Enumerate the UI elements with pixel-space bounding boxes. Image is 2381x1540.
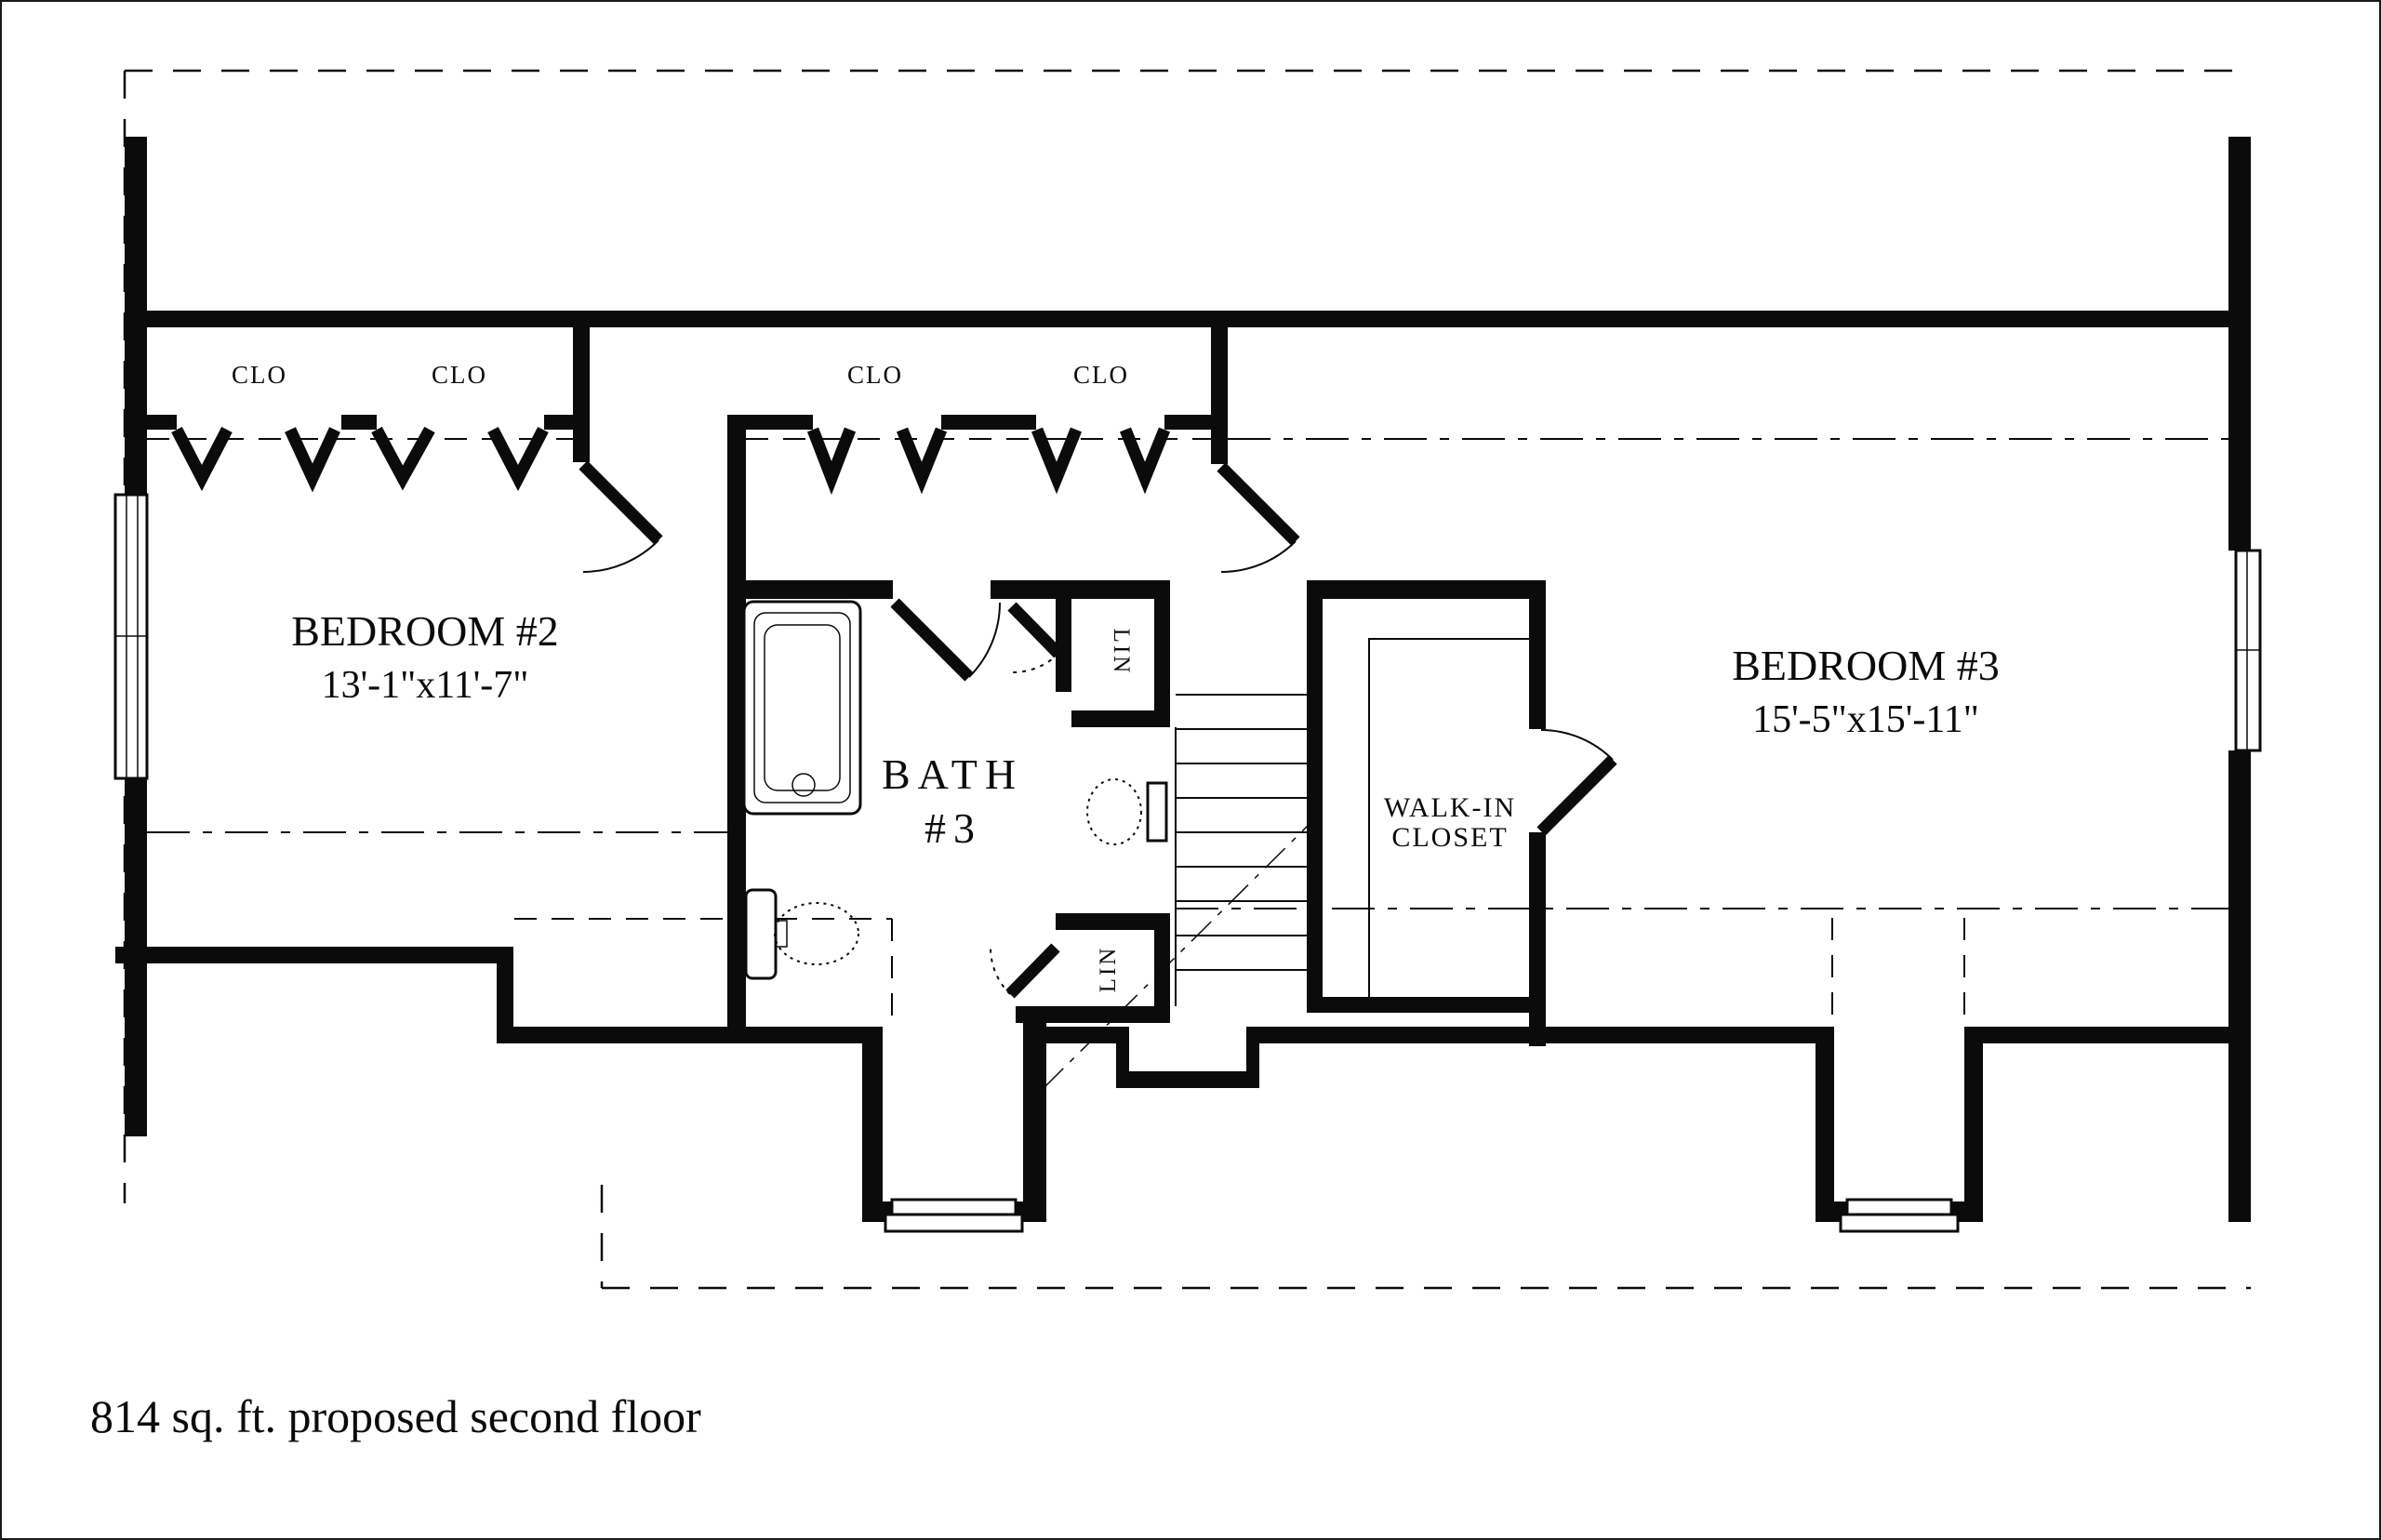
wall-bedroom2-south xyxy=(115,947,513,963)
wall-top xyxy=(125,311,2251,327)
closet-jamb xyxy=(746,415,813,430)
closet-strip xyxy=(147,415,2228,478)
notch-right-wall xyxy=(1246,1027,1259,1088)
bifold-door-icon xyxy=(177,430,227,478)
toilet xyxy=(746,890,858,978)
wall-lin-top-north xyxy=(991,580,1170,599)
wall-south-b xyxy=(1046,1027,1116,1043)
lin-bottom-door-swing-arc xyxy=(991,948,1010,994)
wall-lin-top-east xyxy=(1154,599,1170,710)
wall-stair-east xyxy=(1307,580,1323,1013)
walkin-door-swing-arc xyxy=(1541,730,1613,760)
closet-jamb xyxy=(147,415,177,430)
label-walkin-line1: WALK-IN xyxy=(1384,792,1516,823)
ceiling-break-lines xyxy=(147,832,2228,1027)
window-right xyxy=(2236,551,2260,750)
closet-jamb xyxy=(341,415,377,430)
wall-south-d xyxy=(1983,1027,2251,1043)
bifold-door-icon xyxy=(1037,430,1076,478)
wall-bedroom3-hall xyxy=(1211,327,1228,464)
wall-right-lower xyxy=(2228,750,2251,1222)
wall-walkin-north xyxy=(1307,580,1546,599)
toilet-tank xyxy=(746,890,776,978)
wall-walkin-east-upper xyxy=(1529,580,1546,729)
lin-top-door-swing-arc xyxy=(1012,654,1058,672)
walkin-door-leaf xyxy=(1541,760,1613,831)
label-lin-top: LIN xyxy=(1109,629,1134,676)
bedroom2-door-swing-arc xyxy=(583,540,658,572)
sink-basin xyxy=(1087,779,1141,844)
bifold-door-icon xyxy=(493,430,543,478)
wall-lin-top-south xyxy=(1071,710,1170,727)
bifold-door-icon xyxy=(290,430,335,478)
wall-south-a xyxy=(497,1027,862,1043)
wall-bath-north xyxy=(739,580,893,599)
dormer1-window-sill xyxy=(885,1215,1022,1231)
interior-walls xyxy=(573,327,1546,1046)
dormer1-window xyxy=(885,1200,1022,1231)
bedroom2-door xyxy=(583,465,658,572)
dormer1-left-cheek xyxy=(862,1027,883,1222)
closet-jamb xyxy=(1164,415,1216,430)
label-bedroom2-name: BEDROOM #2 xyxy=(291,607,559,655)
bedroom3-door-swing-arc xyxy=(1221,541,1296,572)
bifold-door-icon xyxy=(813,430,850,478)
lin-top-door xyxy=(1012,606,1058,672)
dormer2-window-sill xyxy=(1841,1215,1958,1231)
dormer1-window-sash xyxy=(892,1200,1016,1215)
label-clo-4: CLO xyxy=(1073,361,1129,389)
bath-door-swing-arc xyxy=(969,603,1000,677)
labels: CLO CLO CLO CLO BEDROOM #2 13'-1"x11'-7"… xyxy=(90,361,2000,1442)
wall-walkin-east-lower xyxy=(1529,832,1546,1046)
south-walls-and-dormers xyxy=(115,918,2251,1231)
bifold-door-icons xyxy=(177,430,1164,478)
label-clo-3: CLO xyxy=(847,361,903,389)
plan-caption: 814 sq. ft. proposed second floor xyxy=(90,1390,701,1442)
lin-top-door-leaf xyxy=(1012,606,1058,654)
floor-plan-drawing: CLO CLO CLO CLO BEDROOM #2 13'-1"x11'-7"… xyxy=(2,2,2381,1540)
label-bath-line1: BATH xyxy=(882,750,1023,798)
wall-bedroom2-hall xyxy=(573,327,590,462)
dormer2-right-cheek xyxy=(1964,1027,1983,1222)
label-clo-1: CLO xyxy=(232,361,287,389)
bedroom3-door xyxy=(1221,467,1296,572)
vanity-counter xyxy=(1148,783,1166,841)
closet-jamb xyxy=(941,415,1036,430)
label-clo-2: CLO xyxy=(432,361,487,389)
bifold-door-icon xyxy=(902,430,941,478)
wall-right-upper xyxy=(2228,137,2251,551)
lin-bottom-door xyxy=(991,948,1056,994)
bath-door xyxy=(895,603,1000,677)
lin-bottom-door-leaf xyxy=(1010,948,1056,994)
floor-plan-sheet: CLO CLO CLO CLO BEDROOM #2 13'-1"x11'-7"… xyxy=(0,0,2381,1540)
sink-vanity xyxy=(1087,779,1166,844)
bathtub-outer xyxy=(744,602,860,814)
label-bedroom3-name: BEDROOM #3 xyxy=(1732,642,2000,689)
bifold-door-icon xyxy=(1125,430,1164,478)
bedroom3-door-leaf xyxy=(1221,467,1296,541)
window-left xyxy=(115,495,147,778)
label-bedroom3-dims: 15'-5"x15'-11" xyxy=(1752,698,1979,741)
wall-south-c xyxy=(1259,1027,1816,1043)
notch-south-wall xyxy=(1116,1071,1259,1088)
dormer2-left-cheek xyxy=(1816,1027,1834,1222)
bifold-door-icon xyxy=(377,430,430,478)
dormer2-window xyxy=(1841,1200,1958,1231)
label-bedroom2-dims: 13'-1"x11'-7" xyxy=(322,664,529,707)
bedroom2-door-leaf xyxy=(583,465,658,540)
dormer2-window-sash xyxy=(1847,1200,1951,1215)
walkin-door xyxy=(1541,730,1613,831)
stair-run-line xyxy=(1044,822,1311,1088)
wall-lin-bottom-north xyxy=(1056,913,1170,930)
bath-door-leaf xyxy=(895,603,969,677)
label-lin-bottom: LIN xyxy=(1096,946,1121,993)
label-walkin-line2: CLOSET xyxy=(1391,822,1508,853)
bathtub xyxy=(744,602,860,814)
label-bath-line2: #3 xyxy=(924,804,982,852)
dormer1-right-cheek xyxy=(1023,1013,1046,1222)
